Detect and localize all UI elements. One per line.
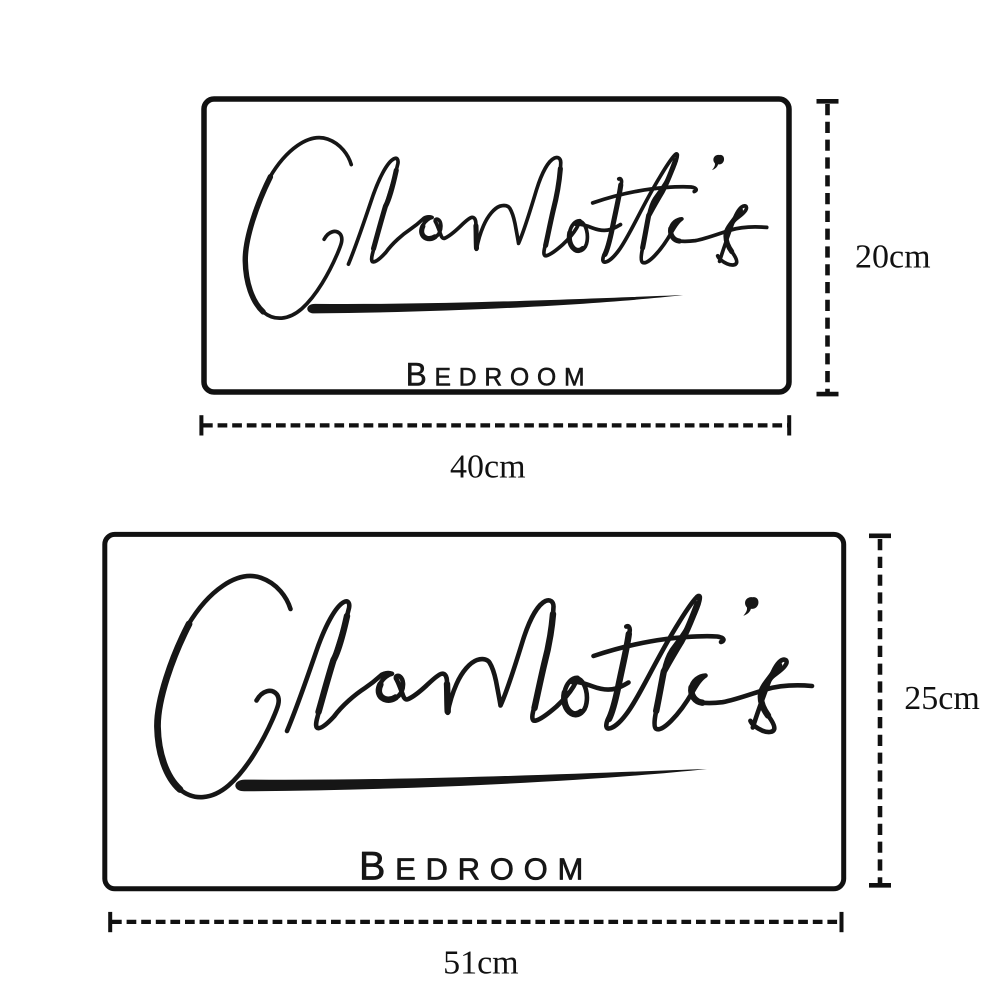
svg-text:51cm: 51cm <box>443 944 519 981</box>
svg-text:25cm: 25cm <box>904 680 980 717</box>
svg-text:40cm: 40cm <box>450 449 526 486</box>
svg-text:20cm: 20cm <box>855 239 931 276</box>
